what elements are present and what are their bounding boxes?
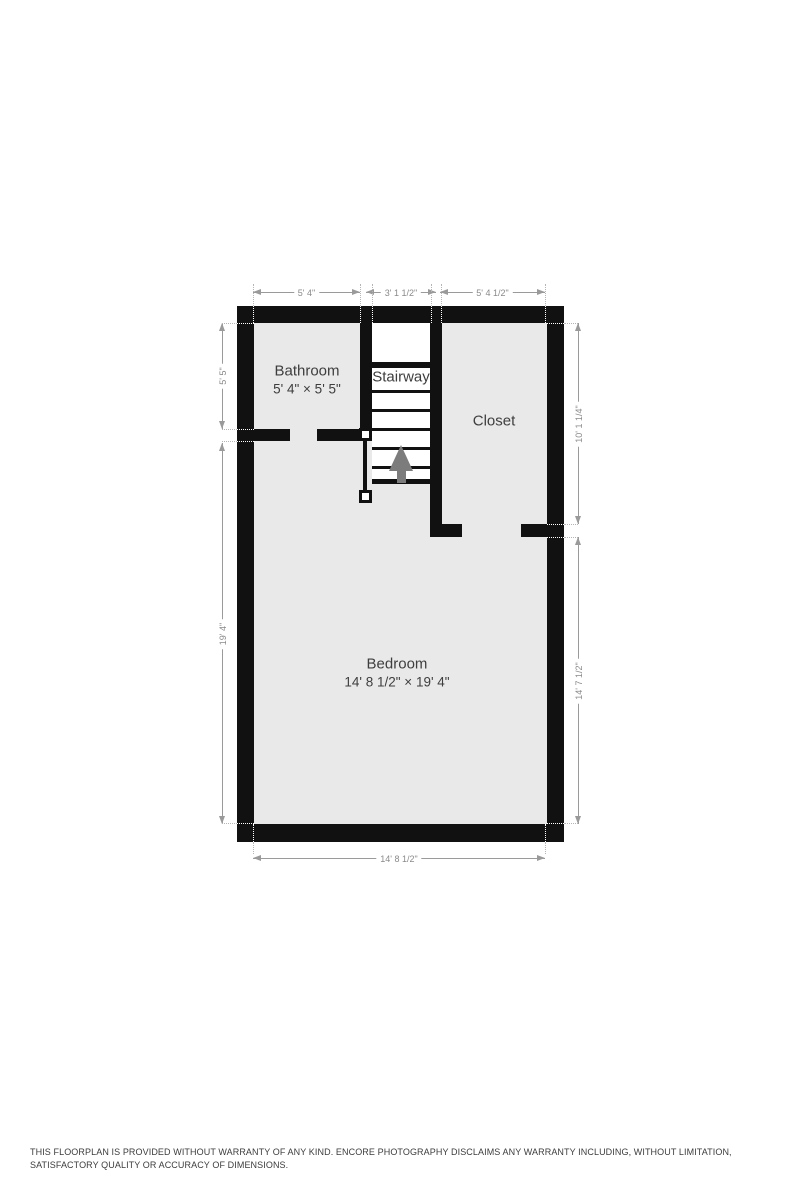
extension-line — [237, 823, 254, 824]
wall-stairway-right — [430, 323, 442, 537]
extension-line — [545, 306, 546, 323]
extension-line — [564, 323, 578, 324]
extension-line — [253, 824, 254, 842]
railing-post — [359, 490, 372, 503]
stair-tread — [372, 428, 430, 431]
extension-line — [237, 323, 254, 324]
dimension-top-middle: 3' 1 1/2" — [366, 288, 436, 297]
railing-post — [359, 428, 372, 441]
bathroom-name: Bathroom — [273, 362, 341, 381]
extension-line — [360, 306, 361, 323]
dimension-top-left: 5' 4" — [253, 288, 360, 297]
dimension-left-lower: 19' 4" — [218, 443, 227, 824]
extension-line — [222, 441, 237, 442]
extension-line — [441, 306, 442, 323]
stair-tread — [372, 409, 430, 412]
extension-line — [545, 284, 546, 306]
bedroom-size: 14' 8 1/2" × 19' 4" — [344, 674, 449, 692]
floorplan-page: Bathroom 5' 4" × 5' 5" Stairway Closet B… — [0, 0, 799, 1200]
extension-line — [564, 823, 578, 824]
extension-line — [372, 306, 373, 323]
extension-line — [222, 429, 237, 430]
extension-line — [547, 524, 564, 525]
wall-stub-closet — [521, 524, 547, 537]
dimension-top-right: 5' 4 1/2" — [440, 288, 545, 297]
extension-line — [547, 823, 564, 824]
closet-name: Closet — [473, 412, 516, 431]
stairway-name: Stairway — [372, 368, 430, 387]
dimension-value: 5' 5" — [218, 363, 228, 388]
stair-tread — [372, 390, 430, 393]
extension-line — [237, 441, 254, 442]
bathroom-size: 5' 4" × 5' 5" — [273, 381, 341, 399]
dimension-value: 3' 1 1/2" — [381, 288, 421, 298]
dimension-value: 14' 7 1/2" — [574, 658, 584, 703]
extension-line — [547, 537, 564, 538]
up-arrow-icon — [397, 469, 406, 483]
stair-railing — [363, 441, 367, 490]
dimension-right-lower: 14' 7 1/2" — [574, 537, 583, 824]
dimension-value: 10' 1 1/4" — [574, 401, 584, 446]
wall-stairway-left — [360, 323, 372, 429]
dimension-value: 19' 4" — [218, 618, 228, 648]
bathroom-label: Bathroom 5' 4" × 5' 5" — [273, 362, 341, 399]
extension-line — [431, 306, 432, 323]
extension-line — [253, 284, 254, 306]
wall-bathroom-b — [317, 429, 360, 441]
wall-bathroom-a — [254, 429, 290, 441]
extension-line — [222, 823, 237, 824]
up-arrow-icon — [389, 445, 413, 471]
extension-line — [545, 842, 546, 854]
wall-stub-stairway — [430, 524, 462, 537]
dimension-bottom: 14' 8 1/2" — [253, 854, 545, 863]
dimension-value: 14' 8 1/2" — [376, 854, 421, 864]
dimension-value: 5' 4 1/2" — [472, 288, 512, 298]
extension-line — [253, 306, 254, 323]
extension-line — [547, 323, 564, 324]
wall-right — [547, 306, 564, 842]
extension-line — [431, 284, 432, 306]
extension-line — [372, 284, 373, 306]
wall-top — [237, 306, 564, 323]
extension-line — [360, 284, 361, 306]
closet-label: Closet — [473, 412, 516, 431]
extension-line — [564, 524, 578, 525]
wall-bottom — [237, 824, 564, 842]
extension-line — [564, 537, 578, 538]
extension-line — [441, 284, 442, 306]
dimension-right-upper: 10' 1 1/4" — [574, 323, 583, 524]
bedroom-name: Bedroom — [344, 655, 449, 674]
bedroom-label: Bedroom 14' 8 1/2" × 19' 4" — [344, 655, 449, 692]
dimension-left-upper: 5' 5" — [218, 323, 227, 429]
wall-left — [237, 306, 254, 842]
stairway-label: Stairway — [372, 368, 430, 387]
dimension-value: 5' 4" — [294, 288, 319, 298]
disclaimer-text: THIS FLOORPLAN IS PROVIDED WITHOUT WARRA… — [30, 1146, 782, 1172]
extension-line — [237, 429, 254, 430]
extension-line — [545, 824, 546, 842]
extension-line — [253, 842, 254, 854]
extension-line — [222, 323, 237, 324]
